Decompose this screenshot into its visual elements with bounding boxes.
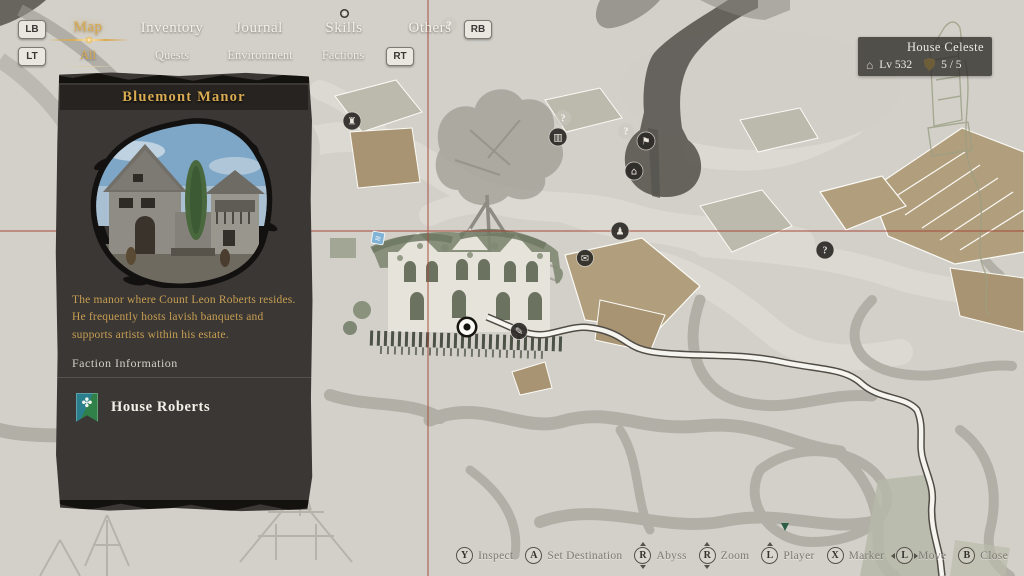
map-poi-npc[interactable]: ♟: [611, 222, 629, 240]
svg-text:⌂: ⌂: [631, 167, 637, 178]
hint-move[interactable]: L Move: [896, 547, 946, 564]
x-button-icon: X: [827, 547, 844, 564]
region-info-badge: House Celeste ⌂ Lv 532 5 / 5: [858, 37, 992, 76]
map-poi-unknown[interactable]: ?: [816, 241, 834, 259]
hint-player[interactable]: L Player: [761, 547, 814, 564]
region-name: House Celeste: [866, 40, 984, 55]
controller-hints-bar: Y Inspect A Set Destination R Abyss R Zo…: [456, 547, 1008, 564]
rt-trigger-key[interactable]: RT: [386, 47, 414, 66]
svg-text:▥: ▥: [553, 133, 562, 144]
region-level: Lv 532: [879, 59, 912, 71]
hint-marker[interactable]: X Marker: [827, 547, 885, 564]
shield-icon: [924, 58, 935, 71]
hint-label: Marker: [849, 550, 885, 562]
active-subtab-underline: [57, 66, 119, 67]
location-image: [75, 116, 293, 288]
hint-label: Player: [783, 550, 814, 562]
y-button-icon: Y: [456, 547, 473, 564]
map-poi-landmark[interactable]: ⚑: [637, 132, 655, 150]
location-title-bar: Bluemont Manor: [60, 85, 308, 110]
location-detail-panel: Bluemont Manor: [55, 72, 313, 512]
faction-name: House Roberts: [111, 399, 210, 416]
lb-shoulder-key[interactable]: LB: [18, 20, 46, 39]
map-poi-landmark[interactable]: ♜: [343, 112, 361, 130]
map-poi-landmark[interactable]: ▥: [549, 128, 567, 146]
hint-label: Abyss: [656, 550, 686, 562]
svg-text:♟: ♟: [616, 227, 625, 238]
map-poi-unknown-faint[interactable]: ?: [618, 123, 634, 139]
faction-row[interactable]: House Roberts: [76, 393, 313, 422]
active-tab-underline: [48, 39, 130, 41]
hint-label: Move: [918, 550, 946, 562]
right-stick-icon: R: [699, 547, 716, 564]
hint-zoom[interactable]: R Zoom: [699, 547, 750, 564]
rb-shoulder-key[interactable]: RB: [464, 20, 492, 39]
skills-notification-icon: [340, 9, 349, 18]
map-poi-landmark[interactable]: ⌂: [625, 162, 643, 180]
subtab-environment[interactable]: Environment: [227, 48, 292, 63]
hint-label: Zoom: [721, 550, 750, 562]
subtab-all[interactable]: All: [80, 48, 96, 63]
hint-inspect[interactable]: Y Inspect: [456, 547, 513, 564]
fast-travel-icon[interactable]: ≋: [371, 231, 385, 245]
svg-text:?: ?: [823, 246, 828, 257]
hint-label: Inspect: [478, 550, 513, 562]
left-stick-icon: L: [761, 547, 778, 564]
hint-set-destination[interactable]: A Set Destination: [525, 547, 622, 564]
left-stick-icon: L: [896, 547, 913, 564]
tab-others[interactable]: Others: [409, 20, 452, 37]
hint-close[interactable]: B Close: [958, 547, 1008, 564]
map-poi-landmark[interactable]: ✎: [511, 323, 528, 340]
house-icon: ⌂: [866, 59, 873, 71]
faction-banner-icon: [76, 393, 98, 422]
game-map-screen: ♜ ▥ ⚑ ⌂ ♟ ✉ ✎ ? ? ? ? ≋: [0, 0, 1024, 576]
map-poi-quest[interactable]: ✉: [577, 250, 594, 267]
lt-trigger-key[interactable]: LT: [18, 47, 46, 66]
tab-skills[interactable]: Skills: [325, 20, 362, 37]
svg-text:?: ?: [624, 127, 629, 138]
subtab-factions[interactable]: Factions: [322, 48, 364, 63]
hint-abyss[interactable]: R Abyss: [634, 547, 686, 564]
selected-location-marker[interactable]: [457, 317, 478, 338]
tab-journal[interactable]: Journal: [235, 20, 283, 37]
tab-inventory[interactable]: Inventory: [141, 20, 204, 37]
svg-text:✉: ✉: [581, 254, 589, 265]
right-stick-icon: R: [634, 547, 651, 564]
map-poi-unknown-faint[interactable]: ?: [555, 110, 571, 126]
svg-text:?: ?: [561, 114, 566, 125]
tab-map[interactable]: Map: [74, 19, 103, 36]
hint-label: Close: [980, 550, 1008, 562]
svg-text:⚑: ⚑: [642, 137, 651, 148]
a-button-icon: A: [525, 547, 542, 564]
subtab-quests[interactable]: Quests: [155, 48, 189, 63]
svg-text:♜: ♜: [348, 117, 357, 128]
location-title: Bluemont Manor: [122, 89, 246, 106]
location-description: The manor where Count Leon Roberts resid…: [72, 292, 296, 344]
hint-label: Set Destination: [547, 550, 622, 562]
b-button-icon: B: [958, 547, 975, 564]
svg-text:✎: ✎: [515, 327, 523, 338]
region-count: 5 / 5: [941, 59, 961, 71]
faction-section-label: Faction Information: [55, 356, 313, 378]
